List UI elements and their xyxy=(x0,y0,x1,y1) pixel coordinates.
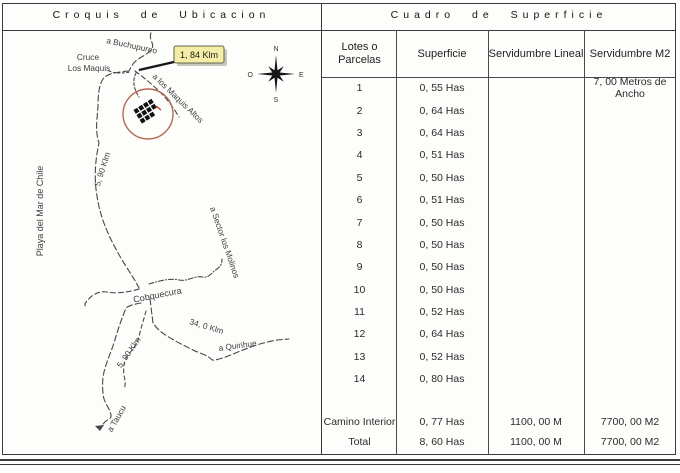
surface-table: Lotes o Parcelas Superficie Servidumbre … xyxy=(323,31,676,453)
compass-north-label: N xyxy=(273,46,278,53)
site-red-mark xyxy=(156,106,161,110)
cell-superficie: 0, 52 Has xyxy=(396,306,488,318)
table-row: 100, 50 Has xyxy=(323,279,676,301)
cell-superficie: 0, 51 Has xyxy=(396,194,488,206)
label-cruce-line1: Cruce xyxy=(77,52,100,62)
label-sector-molinos: a Sector los Molinos xyxy=(208,205,242,279)
bottom-rule-upper xyxy=(0,459,680,461)
distance-tag-pointer-line xyxy=(139,62,174,70)
bottom-rule-lower xyxy=(0,464,680,466)
cell-superficie: 0, 51 Has xyxy=(396,149,488,161)
table-header-row: Lotes o Parcelas Superficie Servidumbre … xyxy=(323,31,676,77)
table-row: 120, 64 Has xyxy=(323,323,676,345)
header-superficie: Superficie xyxy=(396,31,488,77)
road-taucu-arrowhead xyxy=(95,425,104,431)
cell-lote: 10 xyxy=(323,284,396,296)
table-panel-title: Cuadro de Superficie xyxy=(322,9,676,27)
table-row: 10, 55 Has7, 00 Metros de Ancho xyxy=(323,77,676,99)
cell-m2: 7, 00 Metros de Ancho xyxy=(584,76,676,100)
header-serv-lineal: Servidumbre Lineal xyxy=(488,31,584,77)
cell-lote: 13 xyxy=(323,351,396,363)
header-serv-m2: Servidumbre M2 xyxy=(584,31,676,77)
cell-superficie: 8, 60 Has xyxy=(396,436,488,448)
table-row: 70, 50 Has xyxy=(323,211,676,233)
label-cruce-line2: Los Maquis xyxy=(68,63,110,73)
cell-lote: 12 xyxy=(323,328,396,340)
cell-lote: 5 xyxy=(323,172,396,184)
label-quirihue: a Quirihue xyxy=(218,338,258,353)
road-sector-molinos xyxy=(149,259,222,284)
table-row: 30, 64 Has xyxy=(323,122,676,144)
label-playa: Playa del Mar de Chile xyxy=(35,166,45,257)
table-row: 20, 64 Has xyxy=(323,99,676,121)
compass-south-label: S xyxy=(274,97,279,104)
label-km-34: 34, 0 Klm xyxy=(188,316,225,336)
site-buildings-icon xyxy=(133,99,159,124)
cell-lote: 8 xyxy=(323,239,396,251)
table-row: 140, 80 Has xyxy=(323,368,676,390)
label-maquis-altos: a los Maquis Altos xyxy=(151,71,206,125)
cell-superficie: 0, 64 Has xyxy=(396,105,488,117)
map-panel-title: Croquis de Ubicacion xyxy=(2,9,321,27)
cell-lote: 3 xyxy=(323,127,396,139)
cell-m2: 7700, 00 M2 xyxy=(584,416,676,428)
cell-lote: 14 xyxy=(323,373,396,385)
cell-superficie: 0, 80 Has xyxy=(396,373,488,385)
table-row: 60, 51 Has xyxy=(323,189,676,211)
cell-superficie: 0, 50 Has xyxy=(396,172,488,184)
table-row: 50, 50 Has xyxy=(323,167,676,189)
cell-lote: 1 xyxy=(323,82,396,94)
header-lotes: Lotes o Parcelas xyxy=(323,31,396,77)
distance-tag-label: 1, 84 Klm xyxy=(180,50,218,60)
label-cobquecura: Cobquecura xyxy=(132,285,182,304)
cell-superficie: 0, 55 Has xyxy=(396,82,488,94)
table-row: 110, 52 Has xyxy=(323,301,676,323)
compass-east-label: E xyxy=(299,72,304,79)
cell-m2: 7700, 00 M2 xyxy=(584,436,676,448)
cell-lineal: 1100, 00 M xyxy=(488,416,584,428)
table-row: Camino Interior0, 77 Has1100, 00 M7700, … xyxy=(323,390,676,431)
road-west xyxy=(85,289,139,307)
table-row: 90, 50 Has xyxy=(323,256,676,278)
label-km-lower: 5, 90 Klm xyxy=(114,335,142,370)
cell-lote: 11 xyxy=(323,306,396,318)
cell-lineal: 1100, 00 M xyxy=(488,436,584,448)
cell-lote: 6 xyxy=(323,194,396,206)
cell-lote: 7 xyxy=(323,217,396,229)
table-row: 80, 50 Has xyxy=(323,234,676,256)
table-body: 10, 55 Has7, 00 Metros de Ancho20, 64 Ha… xyxy=(323,77,676,452)
scanned-plan-page: Croquis de Ubicacion Cuadro de Superfici… xyxy=(0,0,680,473)
cell-superficie: 0, 50 Has xyxy=(396,261,488,273)
location-sketch-map: 1, 84 Klm N S E O a Buchupureo Cruce Los… xyxy=(3,31,321,454)
site-circle xyxy=(123,89,173,139)
cell-superficie: 0, 52 Has xyxy=(396,351,488,363)
cell-superficie: 0, 64 Has xyxy=(396,127,488,139)
compass-west-label: O xyxy=(248,72,254,79)
cell-lote: 9 xyxy=(323,261,396,273)
compass-rose-icon: N S E O xyxy=(248,46,304,104)
cell-lote: Total xyxy=(323,436,396,448)
cell-superficie: 0, 50 Has xyxy=(396,284,488,296)
table-row: 130, 52 Has xyxy=(323,346,676,368)
cell-superficie: 0, 50 Has xyxy=(396,217,488,229)
cell-superficie: 0, 50 Has xyxy=(396,239,488,251)
cell-superficie: 0, 77 Has xyxy=(396,416,488,428)
cell-lote: 4 xyxy=(323,149,396,161)
cell-lote: Camino Interior xyxy=(323,416,396,428)
cell-lote: 2 xyxy=(323,105,396,117)
table-row: 40, 51 Has xyxy=(323,144,676,166)
cell-superficie: 0, 64 Has xyxy=(396,328,488,340)
table-row: Total8, 60 Has1100, 00 M7700, 00 M2 xyxy=(323,431,676,452)
